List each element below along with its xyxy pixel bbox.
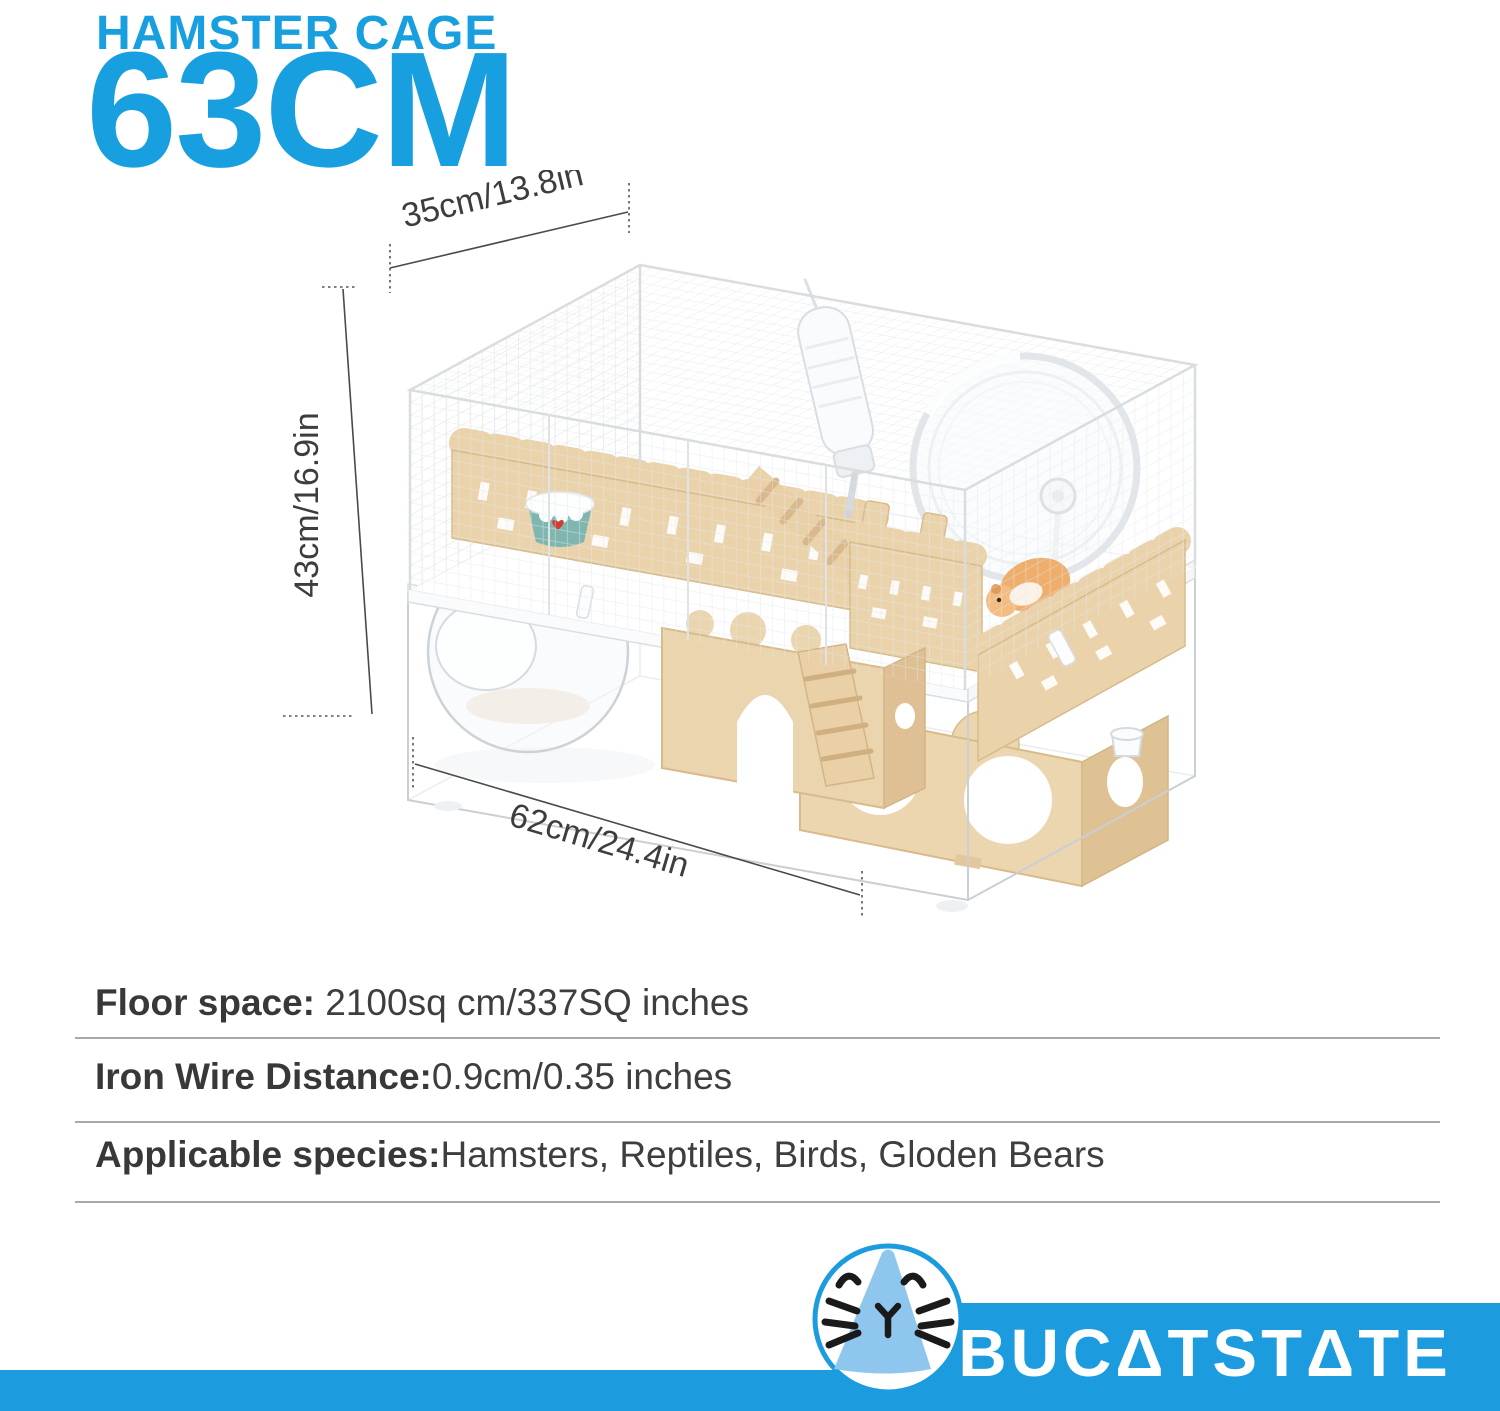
spec-row-wire-distance: Iron Wire Distance:0.9cm/0.35 inches xyxy=(95,1056,732,1098)
dim-label-width: 62cm/24.4in xyxy=(505,796,693,885)
divider xyxy=(75,1121,1440,1123)
dim-label-depth: 35cm/13.8in xyxy=(398,170,587,235)
spec-value: Hamsters, Reptiles, Birds, Gloden Bears xyxy=(440,1134,1104,1175)
spec-row-species: Applicable species:Hamsters, Reptiles, B… xyxy=(95,1134,1105,1176)
product-size-headline: 63CM xyxy=(86,28,515,192)
tray-foot xyxy=(936,900,968,912)
small-cup xyxy=(1111,728,1143,756)
bedding xyxy=(435,747,655,783)
cage-illustration: 35cm/13.8in 43cm/16.9in 62cm/24.4in xyxy=(250,170,1280,930)
divider xyxy=(75,1037,1440,1039)
spec-value: 0.9cm/0.35 inches xyxy=(432,1056,732,1097)
spec-label: Iron Wire Distance: xyxy=(95,1056,432,1097)
divider xyxy=(75,1201,1440,1203)
product-infographic-page: HAMSTER CAGE 63CM xyxy=(0,0,1500,1411)
tray-foot xyxy=(434,801,462,811)
spec-value: 2100sq cm/337SQ inches xyxy=(315,982,749,1023)
cat-logo-icon xyxy=(800,1235,976,1411)
brand-name: BUCΔTSTΔTE xyxy=(925,1315,1485,1392)
dim-line-height xyxy=(343,289,372,714)
spec-row-floor-space: Floor space: 2100sq cm/337SQ inches xyxy=(95,982,749,1024)
dim-label-height: 43cm/16.9in xyxy=(288,412,326,597)
spec-label: Floor space: xyxy=(95,982,315,1023)
spec-label: Applicable species: xyxy=(95,1134,440,1175)
